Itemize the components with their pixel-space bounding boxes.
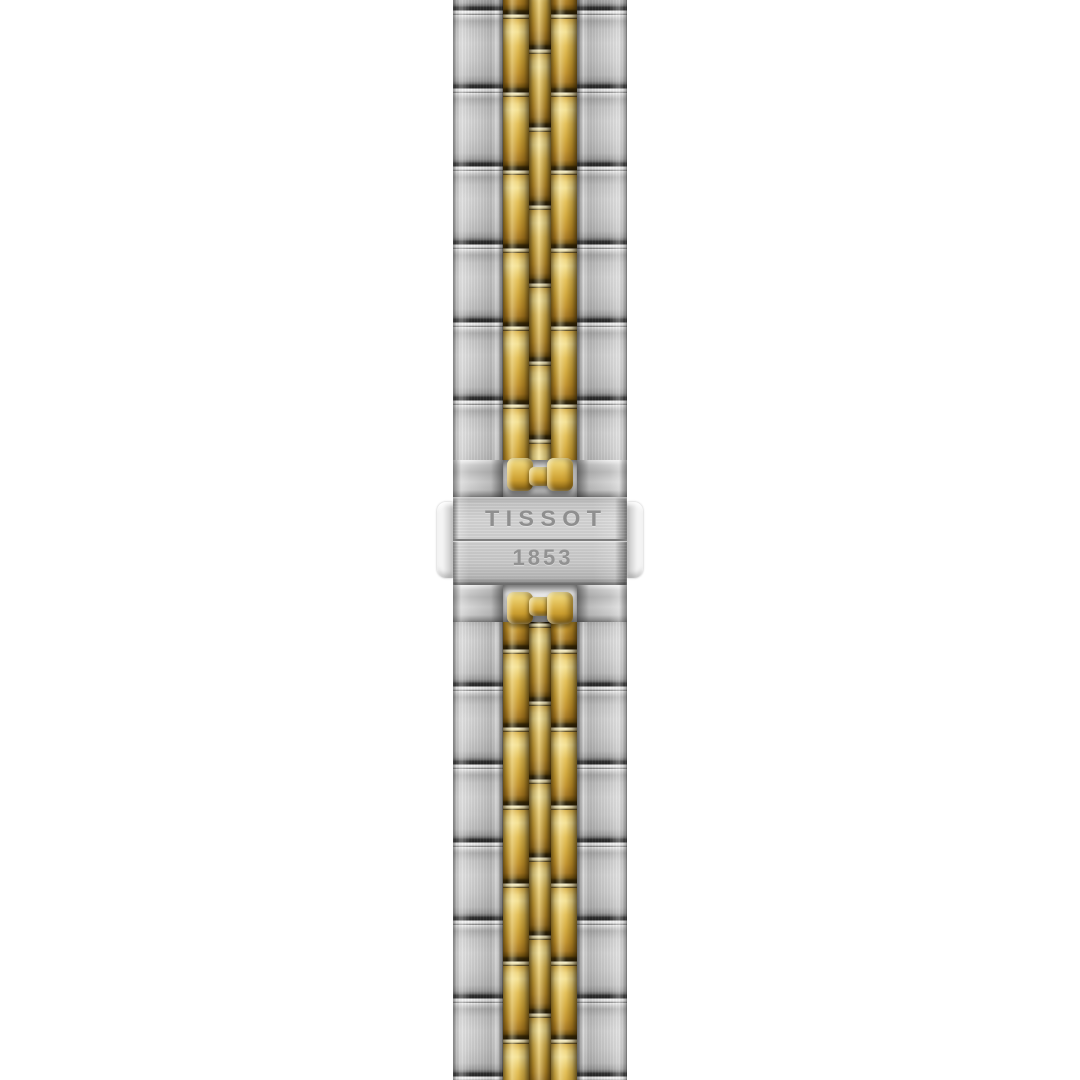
clasp-bottom-rail-left — [453, 585, 503, 622]
clasp-body: TISSOT 1853 — [453, 497, 627, 585]
clasp-top-opening — [503, 460, 577, 497]
bracelet-upper-band — [453, 0, 627, 460]
steel-link-column-right — [577, 622, 627, 1080]
watch-bracelet: TISSOT 1853 — [453, 0, 627, 1080]
gold-link-column-center — [529, 0, 551, 460]
gold-link-column-left — [503, 622, 529, 1080]
clasp-top-rail-left — [453, 460, 503, 497]
clasp-bottom-opening — [503, 585, 577, 622]
clasp-top-rail-right — [577, 460, 627, 497]
clasp-year-engraving: 1853 — [453, 547, 630, 569]
clasp: TISSOT 1853 — [453, 460, 627, 622]
gold-link-column-center — [529, 622, 551, 1080]
steel-link-column-left — [453, 622, 503, 1080]
clasp-top-frame — [453, 460, 627, 497]
steel-link-column-right — [577, 0, 627, 460]
steel-link-column-left — [453, 0, 503, 460]
clasp-bottom-frame — [453, 585, 627, 622]
product-photo: TISSOT 1853 — [0, 0, 1080, 1080]
gold-link-column-left — [503, 0, 529, 460]
clasp-seam — [453, 539, 627, 541]
clasp-brand-engraving: TISSOT — [448, 508, 639, 530]
gold-link-column-right — [551, 0, 577, 460]
gold-link-column-right — [551, 622, 577, 1080]
bracelet-lower-band — [453, 622, 627, 1080]
gold-link-barrel — [547, 458, 573, 491]
clasp-bottom-rail-right — [577, 585, 627, 622]
gold-link-barrel — [547, 592, 573, 624]
